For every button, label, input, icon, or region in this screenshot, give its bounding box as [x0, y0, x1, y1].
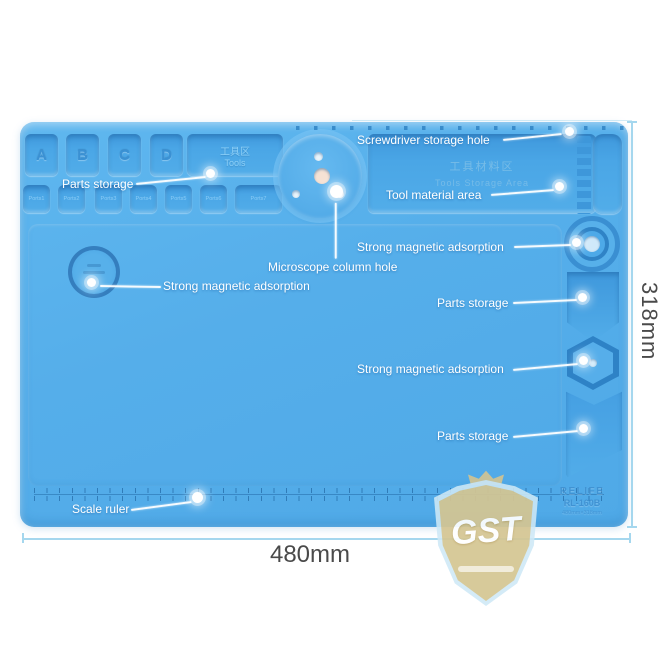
callout-magnetic-right-top: Strong magnetic adsorption [357, 240, 504, 254]
magnet-hole [584, 236, 600, 252]
hexagon-hole [589, 359, 597, 367]
product-image: A B C D 工具区 Tools Ports1 Ports2 Ports3 P… [0, 0, 672, 672]
brand-text: RELIFE RL-160B 480mm×318mm [540, 486, 624, 516]
compartment-a: A [25, 134, 58, 176]
height-dimension-line [631, 122, 633, 527]
callout-dot [579, 424, 588, 433]
compartment-d: D [150, 134, 183, 176]
callout-dot [87, 278, 96, 287]
tools-label-cn: 工具区 [220, 143, 250, 158]
callout-dot [192, 492, 203, 503]
ladder-slots [577, 136, 591, 214]
small-hole [314, 152, 323, 161]
width-dimension-label: 480mm [262, 541, 358, 569]
brand-model: RL-160B [540, 498, 624, 508]
width-dim-tick-right [629, 533, 631, 543]
callout-dot [578, 293, 587, 302]
magnet-marking [87, 264, 101, 267]
magnet-circle-left [68, 246, 120, 298]
height-dim-tick-bottom [627, 526, 637, 528]
ports-compartment-4: Ports4 [130, 185, 157, 213]
callout-dot [572, 238, 581, 247]
callout-dot [579, 356, 588, 365]
ports-compartment-7: Ports7 [235, 185, 282, 213]
tools-label-en: Tools [224, 158, 245, 168]
callout-dot [206, 169, 215, 178]
microscope-center-hole [314, 168, 330, 184]
watermark-subtext-bar [458, 566, 514, 572]
callout-magnetic-right-lower: Strong magnetic adsorption [357, 362, 504, 376]
callout-parts-storage-bottom: Parts storage [437, 429, 508, 443]
tools-compartment: 工具区 Tools [187, 134, 283, 176]
callout-parts-storage-right: Parts storage [437, 296, 508, 310]
compartment-c: C [108, 134, 141, 176]
compartment-b: B [66, 134, 99, 176]
callout-tool-material-area: Tool material area [386, 188, 481, 202]
callout-dot [565, 127, 574, 136]
height-dimension-label: 318mm [636, 282, 662, 360]
screwdriver-holes-row [296, 126, 626, 130]
callout-dot [330, 185, 343, 198]
leader-line [335, 203, 337, 259]
watermark-text: GST [433, 508, 539, 554]
callout-microscope-column-hole: Microscope column hole [268, 260, 397, 274]
ports-compartment-5: Ports5 [165, 185, 192, 213]
width-dim-tick-left [22, 533, 24, 543]
watermark-badge: GST [434, 468, 538, 608]
callout-magnetic-left: Strong magnetic adsorption [163, 279, 310, 293]
small-hole [292, 190, 300, 198]
ports-compartment-6: Ports6 [200, 185, 227, 213]
callout-parts-storage-top: Parts storage [62, 177, 133, 191]
top-extension-line [352, 120, 632, 121]
callout-dot [555, 182, 564, 191]
callout-scale-ruler: Scale ruler [72, 502, 129, 516]
ports-compartment-1: Ports1 [23, 185, 50, 213]
brand-size: 480mm×318mm [540, 510, 624, 516]
width-dimension-line [22, 538, 630, 540]
microscope-column-area [278, 134, 362, 218]
chevron-compartment [567, 272, 619, 342]
magnet-marking [83, 271, 105, 274]
callout-screwdriver-storage-hole: Screwdriver storage hole [357, 133, 490, 147]
side-slot-compartment [593, 134, 622, 214]
bottom-right-compartment [566, 388, 622, 482]
brand-name: RELIFE [540, 486, 624, 497]
height-dim-tick-top [627, 121, 637, 123]
